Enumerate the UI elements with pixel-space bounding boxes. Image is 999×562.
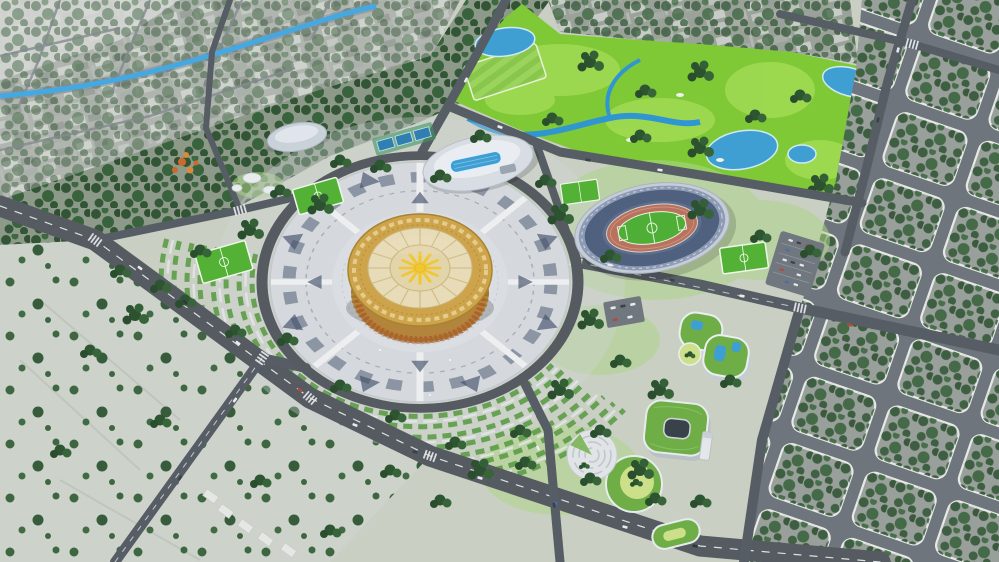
masterplan-render: [0, 0, 999, 562]
golden-arena: [346, 214, 494, 342]
terraced-round-park: [567, 430, 617, 480]
inner-courtyard: [663, 418, 691, 440]
